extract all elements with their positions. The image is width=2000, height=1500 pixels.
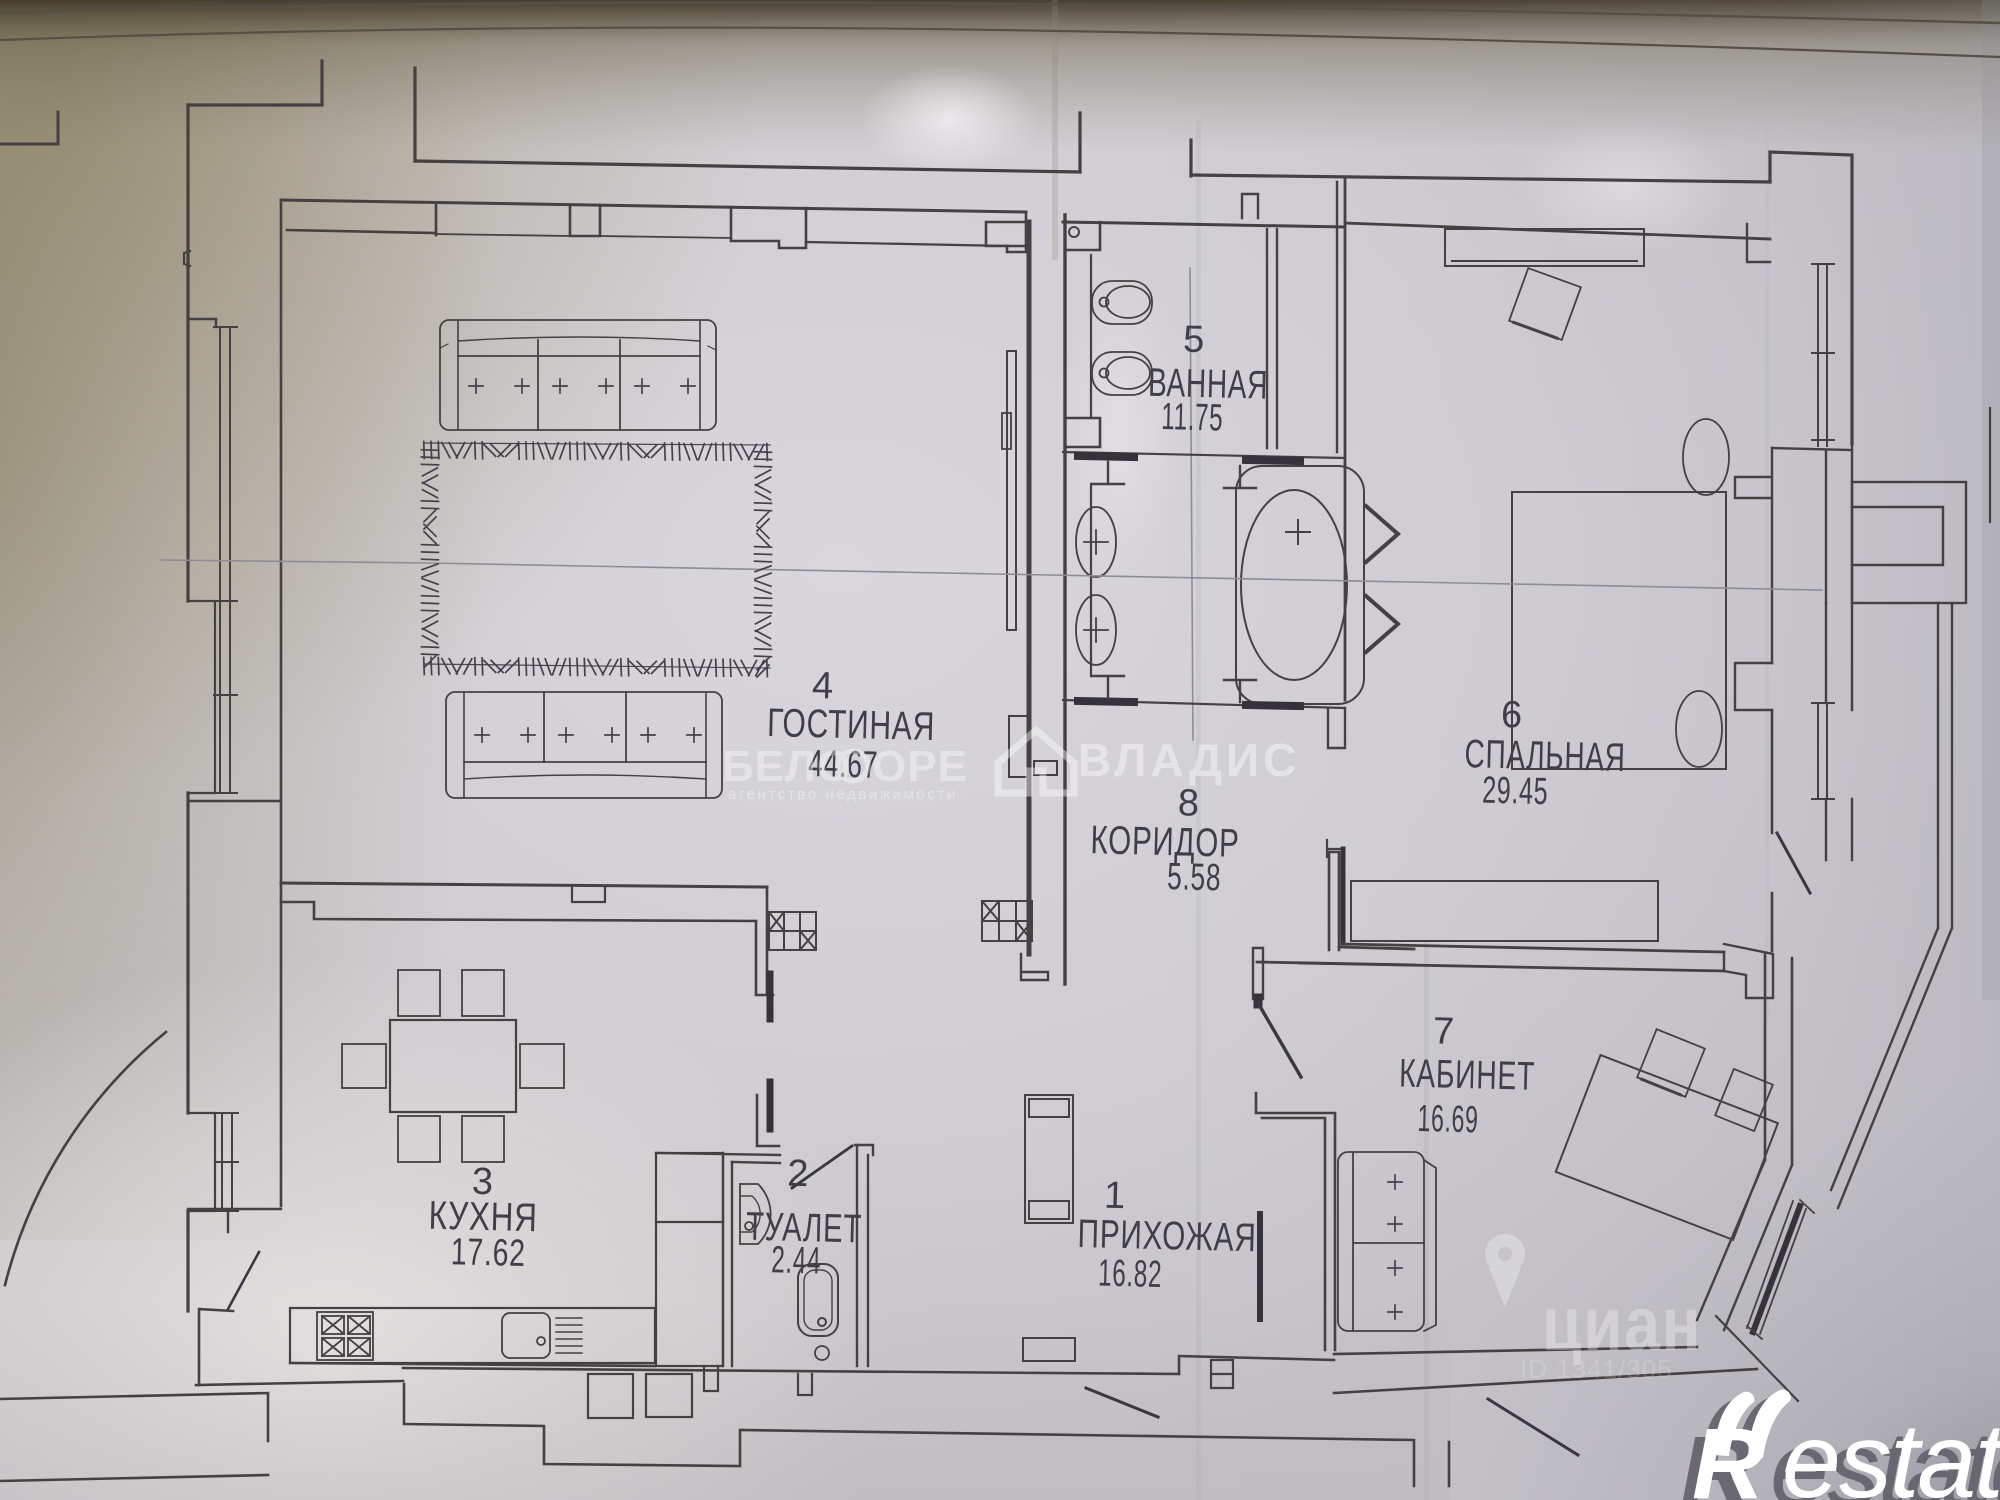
svg-text:17.62: 17.62 — [450, 1231, 526, 1275]
svg-text:5: 5 — [1183, 319, 1206, 362]
svg-text:агентство недвижимости: агентство недвижимости — [728, 786, 958, 803]
svg-text:16.69: 16.69 — [1417, 1098, 1479, 1141]
svg-text:7: 7 — [1433, 1010, 1456, 1053]
svg-text:16.82: 16.82 — [1098, 1253, 1163, 1297]
svg-text:6: 6 — [1501, 694, 1524, 737]
svg-text:11.75: 11.75 — [1161, 396, 1224, 440]
svg-text:КАБИНЕТ: КАБИНЕТ — [1399, 1052, 1536, 1099]
svg-text:ОРЕ: ОРЕ — [872, 742, 968, 791]
svg-text:2.44: 2.44 — [771, 1239, 822, 1282]
svg-text:29.45: 29.45 — [1482, 770, 1549, 814]
svg-text:2: 2 — [787, 1153, 810, 1196]
svg-text:ID 1341/305: ID 1341/305 — [1520, 1354, 1673, 1384]
svg-text:ВЛАДИС: ВЛАДИС — [1078, 734, 1300, 786]
svg-text:1: 1 — [1103, 1175, 1126, 1218]
svg-text:estate: estate — [1782, 1402, 2000, 1500]
svg-text:5.58: 5.58 — [1167, 856, 1222, 899]
svg-text:БЕЛО: БЕЛО — [722, 742, 852, 791]
svg-text:8: 8 — [1177, 782, 1200, 825]
